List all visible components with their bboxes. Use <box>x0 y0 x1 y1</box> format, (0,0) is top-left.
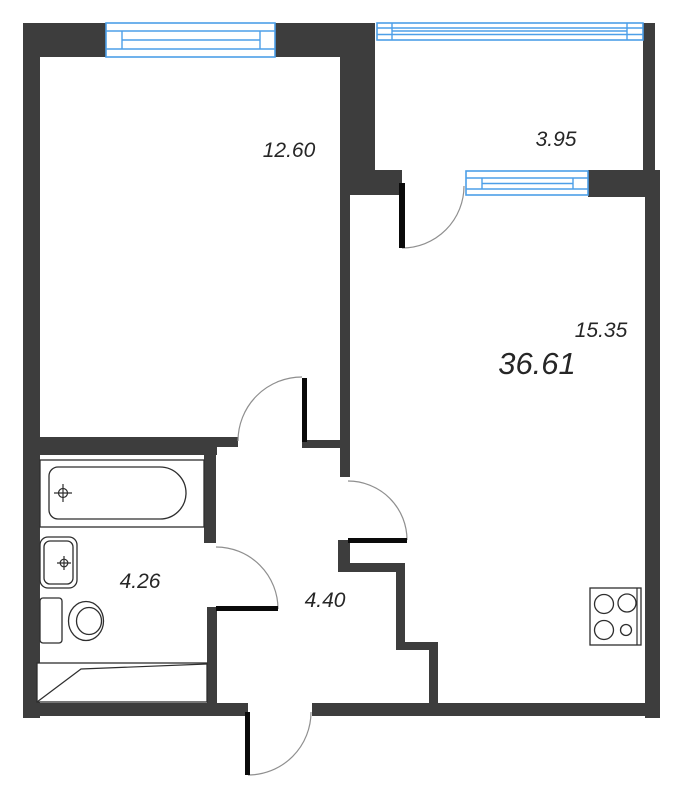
door-leaf <box>216 606 278 611</box>
door-leaf <box>302 378 307 442</box>
toilet-tank <box>40 598 62 643</box>
toilet-icon <box>40 598 104 643</box>
area-label-total: 36.61 <box>498 346 576 381</box>
wall-hall-top-right <box>302 440 340 448</box>
burner-small <box>621 625 632 636</box>
wall-bathroom-right-lower <box>207 607 217 705</box>
burner <box>595 621 614 640</box>
wall-column-room-balcony <box>340 23 375 195</box>
area-label-bathroom: 4.26 <box>120 570 161 593</box>
toilet-bowl-inner <box>77 608 102 635</box>
burner <box>618 594 636 612</box>
door-leaf <box>348 538 407 543</box>
wall-outer-left <box>23 23 40 718</box>
wall-outer-right <box>645 170 660 718</box>
stove-icon <box>590 588 641 645</box>
door-swing-arc <box>348 481 407 540</box>
door-room-icon <box>238 377 307 442</box>
floor-plan-canvas: 12.60 3.95 15.35 36.61 4.26 4.40 <box>0 0 691 800</box>
wall-hall-top-left <box>217 437 238 447</box>
door-swing-arc <box>402 186 464 248</box>
door-swing-arc <box>248 712 311 775</box>
wall-bathroom-top <box>23 437 217 455</box>
wall-top-left-of-window <box>40 23 106 57</box>
area-label-hallway: 4.40 <box>305 589 346 612</box>
sink-icon <box>40 537 77 588</box>
wall-bathroom-right-upper <box>204 437 216 543</box>
wall-hall-step-2 <box>338 563 403 572</box>
burner <box>595 595 614 614</box>
area-label-kitchen-living: 15.35 <box>575 319 628 342</box>
window-balcony-band-icon <box>377 23 643 40</box>
floor-plan: 12.60 3.95 15.35 36.61 4.26 4.40 <box>0 0 691 800</box>
door-entrance-icon <box>245 712 311 775</box>
area-label-room: 12.60 <box>263 139 316 162</box>
door-leaf <box>399 183 405 248</box>
bathtub-icon <box>40 460 204 527</box>
wall-hall-step-5 <box>429 642 438 705</box>
area-label-balcony: 3.95 <box>536 128 577 151</box>
wall-outer-bottom-right <box>312 703 660 716</box>
wall-outer-right-balcony <box>643 23 655 170</box>
wall-balcony-living-left <box>375 170 402 195</box>
washing-machine-niche-icon <box>37 663 207 702</box>
door-swing-arc <box>216 547 278 609</box>
door-leaf <box>245 712 250 775</box>
wall-partition-room-living <box>340 195 350 477</box>
door-swing-arc <box>238 377 302 441</box>
wall-balcony-living-right <box>588 170 655 197</box>
wall-hall-step-3 <box>396 563 405 650</box>
door-living-icon <box>348 481 407 543</box>
door-bathroom-icon <box>216 547 278 611</box>
wall-top-right-of-window <box>275 23 340 57</box>
window-room-icon <box>106 23 275 57</box>
window-balcony-living-icon <box>466 171 588 195</box>
door-balcony-icon <box>399 183 464 248</box>
